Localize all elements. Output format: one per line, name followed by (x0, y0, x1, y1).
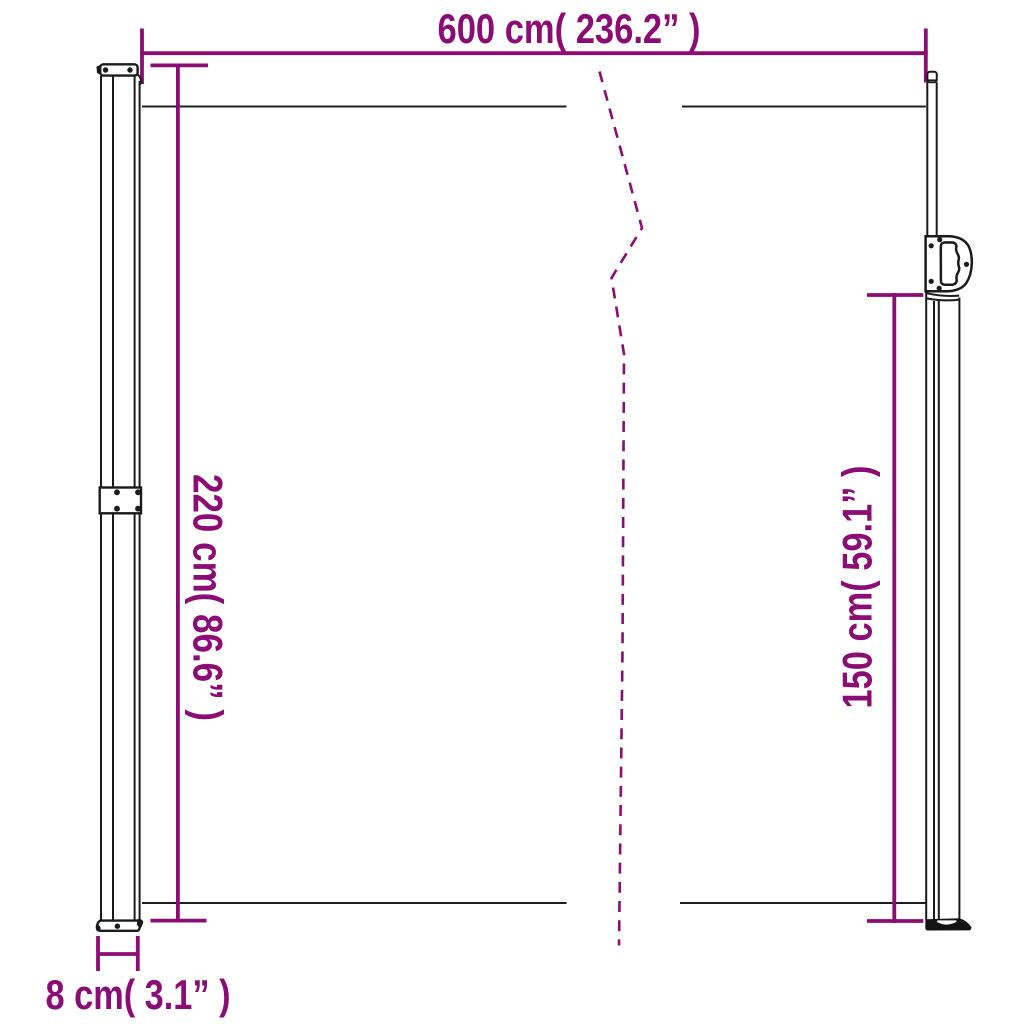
svg-text:600 cm( 236.2” ): 600 cm( 236.2” ) (438, 5, 701, 52)
svg-text:220 cm( 86.6” ): 220 cm( 86.6” ) (185, 474, 232, 721)
svg-text:8 cm( 3.1” ): 8 cm( 3.1” ) (46, 971, 231, 1018)
svg-text:150 cm( 59.1” ): 150 cm( 59.1” ) (834, 466, 881, 709)
